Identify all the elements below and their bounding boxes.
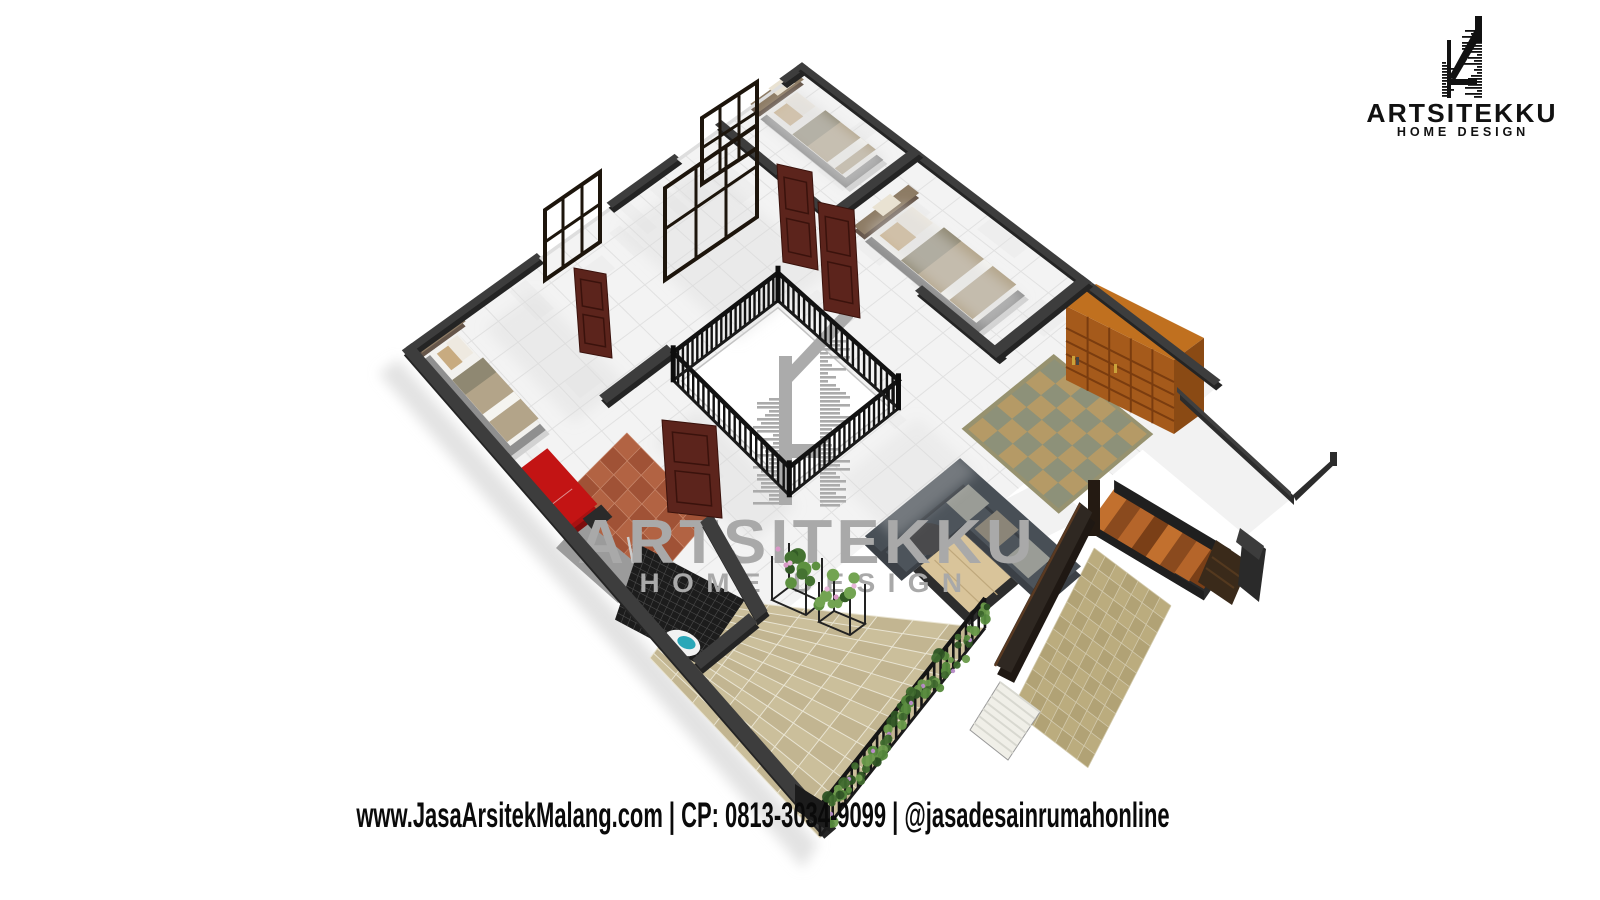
svg-text:www.JasaArsitekMalang.com | CP: www.JasaArsitekMalang.com | CP: 0813-303… bbox=[356, 797, 1170, 835]
svg-text:HOME DESIGN: HOME DESIGN bbox=[1397, 124, 1529, 139]
